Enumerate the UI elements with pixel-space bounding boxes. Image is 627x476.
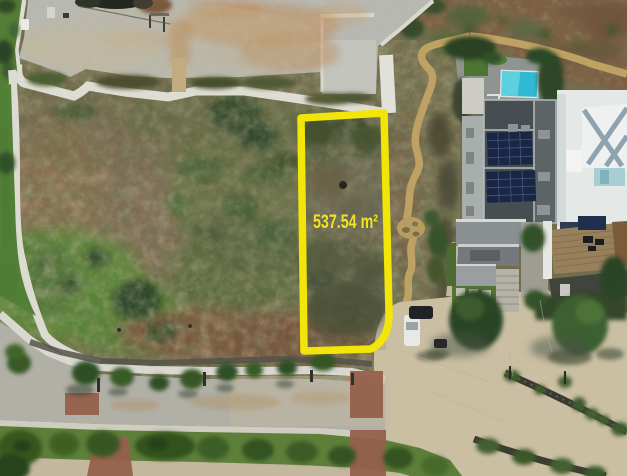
svg-text:537.54 m²: 537.54 m²	[313, 211, 378, 233]
